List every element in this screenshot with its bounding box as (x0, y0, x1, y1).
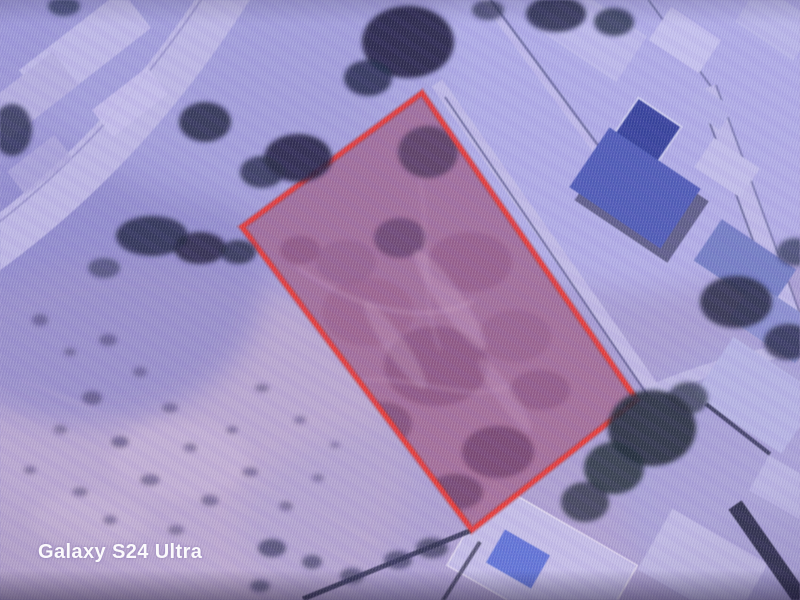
satellite-map (0, 0, 800, 600)
device-watermark: Galaxy S24 Ultra (38, 541, 202, 564)
screen-photo: Galaxy S24 Ultra (0, 0, 800, 600)
